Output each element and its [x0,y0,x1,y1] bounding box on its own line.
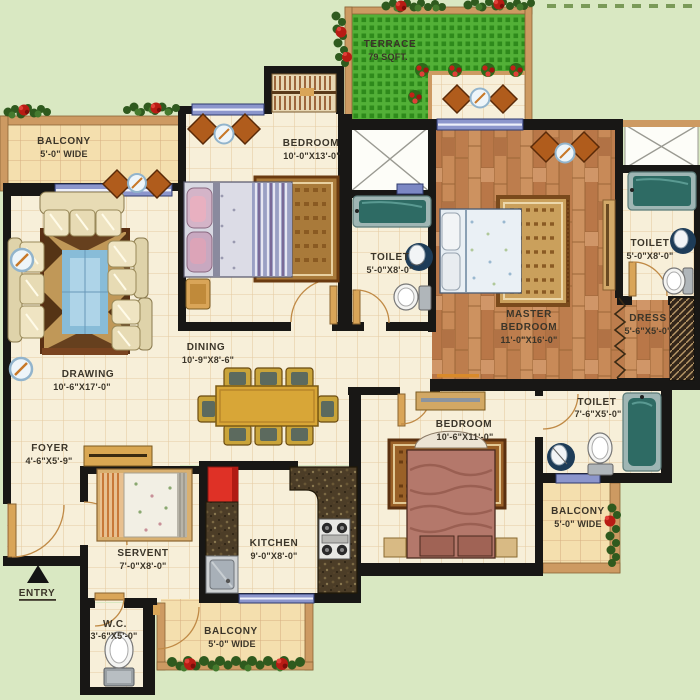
svg-text:DRAWING: DRAWING [62,369,115,380]
svg-text:KITCHEN: KITCHEN [250,538,299,549]
svg-text:BEDROOM: BEDROOM [283,138,339,149]
svg-text:7'-0"X8'-0": 7'-0"X8'-0" [119,561,166,571]
svg-text:ENTRY: ENTRY [19,588,56,599]
svg-text:BALCONY: BALCONY [37,136,91,147]
svg-text:9'-0"X8'-0": 9'-0"X8'-0" [250,551,297,561]
svg-text:BEDROOM: BEDROOM [501,322,557,333]
svg-text:BEDROOM: BEDROOM [436,419,492,430]
svg-text:79 SQFT.: 79 SQFT. [368,52,408,62]
svg-text:10'-9"X8'-6": 10'-9"X8'-6" [182,355,234,365]
svg-text:DRESS: DRESS [629,313,666,324]
svg-text:5'-0"X8'-0": 5'-0"X8'-0" [366,265,413,275]
svg-text:4'-6"X5'-9": 4'-6"X5'-9" [25,456,72,466]
svg-text:DINING: DINING [187,342,226,353]
svg-text:TOILET: TOILET [631,238,670,249]
svg-text:TERRACE: TERRACE [364,39,417,50]
svg-text:10'-6"X11'-0": 10'-6"X11'-0" [437,432,494,442]
svg-text:BALCONY: BALCONY [204,626,258,637]
svg-text:10'-6"X17'-0": 10'-6"X17'-0" [53,382,110,392]
svg-text:5'-0" WIDE: 5'-0" WIDE [208,639,255,649]
svg-text:SERVENT: SERVENT [117,548,168,559]
svg-text:FOYER: FOYER [31,443,69,454]
svg-text:TOILET: TOILET [578,397,617,408]
svg-text:5'-6"X5'-0": 5'-6"X5'-0" [624,326,671,336]
svg-text:TOILET: TOILET [371,252,410,263]
svg-text:5'-0" WIDE: 5'-0" WIDE [554,519,601,529]
svg-text:3'-6"X5'-0": 3'-6"X5'-0" [90,631,137,641]
svg-text:5'-0"X8'-0": 5'-0"X8'-0" [626,251,673,261]
svg-text:10'-0"X13'-0": 10'-0"X13'-0" [283,151,340,161]
svg-text:7'-6"X5'-0": 7'-6"X5'-0" [574,409,621,419]
svg-text:MASTER: MASTER [506,309,552,320]
svg-text:BALCONY: BALCONY [551,506,605,517]
svg-text:11'-0"X16'-0": 11'-0"X16'-0" [501,335,558,345]
svg-text:5'-0" WIDE: 5'-0" WIDE [40,149,87,159]
svg-text:W.C.: W.C. [103,619,127,630]
